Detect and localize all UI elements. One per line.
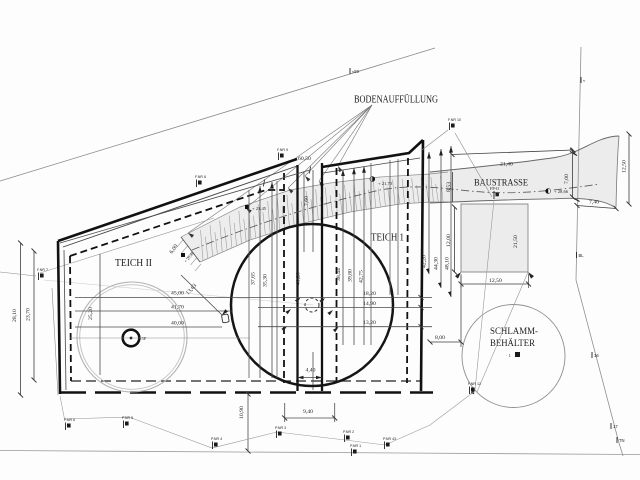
svg-text:35,30: 35,30 xyxy=(263,274,269,287)
svg-text:·5F: ·5F xyxy=(140,336,147,341)
svg-text:P.NR 43: P.NR 43 xyxy=(383,437,396,441)
svg-text:7,40: 7,40 xyxy=(589,200,599,206)
svg-text:18,20: 18,20 xyxy=(363,291,376,297)
svg-text:P.NR 5: P.NR 5 xyxy=(122,416,133,420)
svg-text:8,00: 8,00 xyxy=(435,335,445,341)
svg-text:13,20: 13,20 xyxy=(363,320,376,326)
svg-text:25,20: 25,20 xyxy=(88,307,94,320)
svg-text:· 1: · 1 xyxy=(506,353,512,358)
svg-text:BODENAUFFÜLLUNG: BODENAUFFÜLLUNG xyxy=(354,94,438,106)
svg-text:9,40: 9,40 xyxy=(303,409,313,415)
svg-text:12,50: 12,50 xyxy=(489,278,502,284)
svg-text:F.NR 9: F.NR 9 xyxy=(277,148,288,152)
svg-text:21,40: 21,40 xyxy=(500,162,513,168)
svg-text:41,70: 41,70 xyxy=(171,305,184,311)
svg-text:F.NR 12: F.NR 12 xyxy=(468,382,481,386)
svg-text:41,20: 41,20 xyxy=(296,272,302,285)
svg-text:F.NR 8: F.NR 8 xyxy=(195,175,206,179)
svg-text:39,80: 39,80 xyxy=(348,269,354,282)
svg-text:BAUSTRASSE: BAUSTRASSE xyxy=(474,178,528,188)
svg-text:4,40: 4,40 xyxy=(306,368,316,374)
svg-text:P.NR 1: P.NR 1 xyxy=(350,444,361,448)
svg-text:48,10: 48,10 xyxy=(445,257,451,270)
svg-text:TEICH II: TEICH II xyxy=(115,258,152,269)
svg-text:8,53: 8,53 xyxy=(446,182,453,192)
svg-text:14,90: 14,90 xyxy=(363,301,376,307)
svg-text:P.NR 3: P.NR 3 xyxy=(275,426,286,430)
svg-text:37,65: 37,65 xyxy=(251,272,257,285)
svg-text:21,50: 21,50 xyxy=(513,235,519,248)
svg-text:BL: BL xyxy=(579,253,585,258)
svg-text:38,44: 38,44 xyxy=(336,268,342,281)
svg-text:60,50: 60,50 xyxy=(298,156,311,162)
svg-text:TEICH 1: TEICH 1 xyxy=(371,233,404,244)
svg-text:7,00: 7,00 xyxy=(564,174,570,184)
svg-text:42,20: 42,20 xyxy=(422,255,428,268)
svg-text:42,75: 42,75 xyxy=(359,270,365,283)
svg-text:23,70: 23,70 xyxy=(26,308,32,321)
svg-text:45,00: 45,00 xyxy=(171,291,184,297)
svg-text:10,90: 10,90 xyxy=(239,406,245,419)
svg-text:P.NR 2: P.NR 2 xyxy=(343,430,354,434)
svg-text:40,00: 40,00 xyxy=(171,321,184,327)
svg-text:28,10: 28,10 xyxy=(12,309,18,322)
svg-text:17: 17 xyxy=(613,424,618,429)
svg-text:P.NR 6: P.NR 6 xyxy=(64,418,75,422)
svg-text:F.NR 7: F.NR 7 xyxy=(37,268,48,272)
svg-text:P.NR 4: P.NR 4 xyxy=(211,437,222,441)
svg-text:F.NR 10: F.NR 10 xyxy=(448,118,461,122)
svg-text:≈50: ≈50 xyxy=(352,69,360,74)
svg-text:16: 16 xyxy=(594,353,599,358)
svg-text:TN: TN xyxy=(619,438,625,443)
svg-text:44,30: 44,30 xyxy=(434,257,440,270)
svg-text:SCHLAMM-: SCHLAMM- xyxy=(490,327,538,337)
svg-text:7,60: 7,60 xyxy=(304,196,310,206)
svg-text:12,50: 12,50 xyxy=(622,160,628,173)
svg-text:BEHÄLTER: BEHÄLTER xyxy=(490,337,536,349)
